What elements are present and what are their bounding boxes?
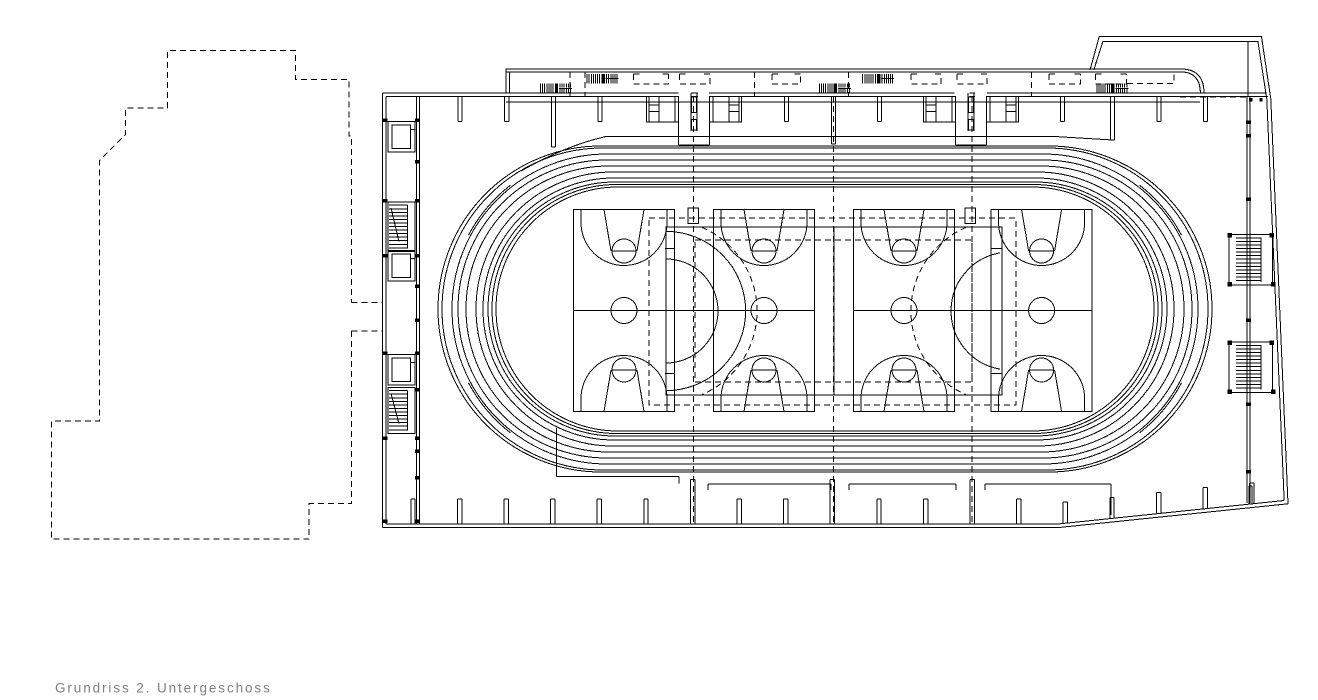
svg-text:Grundriss 2. Untergeschoss: Grundriss 2. Untergeschoss [55,681,272,696]
